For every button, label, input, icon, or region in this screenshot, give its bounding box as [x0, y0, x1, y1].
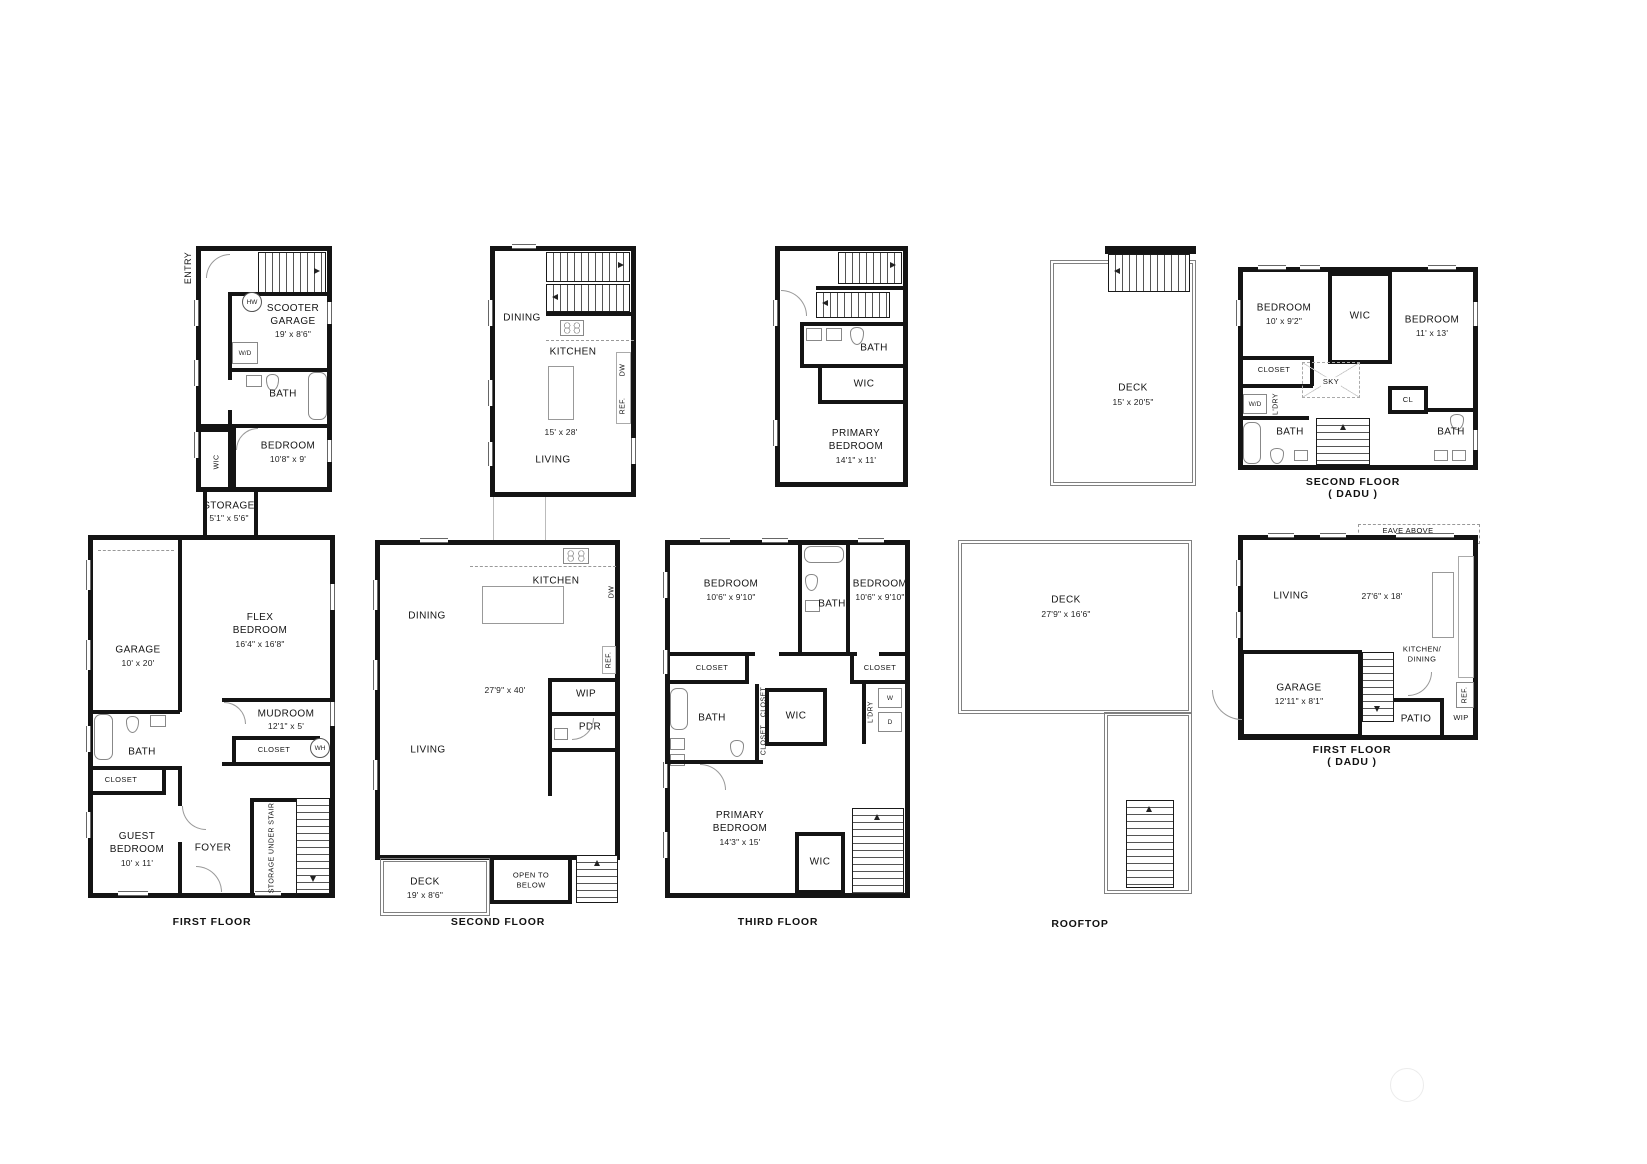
- window: [1473, 302, 1478, 326]
- window: [512, 244, 536, 249]
- room-label-kitchen-dining: KITCHEN/ DINING: [1391, 644, 1453, 664]
- caption-rooftop: ROOFTOP: [1051, 918, 1108, 930]
- dim-garage: 10' x 20': [122, 658, 155, 668]
- caption-third-floor: THIRD FLOOR: [738, 916, 819, 928]
- dim-second-lower: 27'9" x 40': [484, 685, 525, 695]
- wall: [548, 748, 620, 752]
- sink-symbol: [1294, 450, 1308, 461]
- stair-direction-arrow: [618, 262, 624, 268]
- dishwasher-label: DW: [609, 586, 616, 598]
- room-label-bath-right: BATH: [1437, 426, 1465, 439]
- window: [1236, 612, 1241, 638]
- window: [1236, 560, 1241, 586]
- rooftop-deck-railing: [1050, 260, 1196, 486]
- window: [194, 432, 199, 458]
- room-label-bedroom: BEDROOM: [261, 440, 315, 453]
- wall: [1243, 416, 1309, 420]
- window: [1258, 265, 1286, 270]
- room-label-dining: DINING: [503, 312, 540, 325]
- dim-primary-bedroom: 14'3" x 15': [719, 837, 760, 847]
- dim-bedroom: 10'8" x 9': [270, 454, 306, 464]
- sink-symbol: [670, 738, 685, 750]
- dim-deck: 27'9" x 16'6": [1041, 609, 1090, 619]
- dim-deck: 15' x 20'5": [1112, 397, 1153, 407]
- room-label-closet: CLOSET: [1258, 365, 1290, 375]
- room-label-guest-closet: CLOSET: [105, 775, 137, 785]
- sink-symbol: [1452, 450, 1466, 461]
- deck-label: DECK: [1118, 382, 1147, 395]
- wall: [88, 791, 166, 795]
- window: [631, 438, 636, 464]
- stair-direction-arrow: [314, 268, 320, 274]
- window: [663, 832, 668, 858]
- window: [858, 538, 884, 543]
- stair-direction-arrow: [1374, 706, 1380, 712]
- wall: [800, 322, 804, 368]
- bathtub-symbol: [94, 714, 113, 760]
- room-label-garage: GARAGE: [1276, 682, 1321, 695]
- window: [86, 812, 91, 838]
- garage-door-dashed: [98, 550, 174, 551]
- sink-symbol: [246, 375, 262, 387]
- window: [373, 660, 378, 690]
- room-label-bath-top: BATH: [818, 598, 846, 611]
- room-label-foyer: FOYER: [195, 842, 231, 855]
- room-label-wic-mid: WIC: [786, 710, 807, 723]
- bathtub-symbol: [670, 688, 688, 730]
- wall: [862, 684, 866, 744]
- window: [1300, 265, 1320, 270]
- wall: [546, 312, 636, 316]
- room-label-bath: BATH: [860, 342, 888, 355]
- stair-direction-arrow: [1340, 424, 1346, 430]
- room-label-wic: WIC: [854, 378, 875, 391]
- skylight-label: SKY: [1321, 377, 1341, 387]
- wall: [232, 736, 236, 764]
- wall: [548, 678, 620, 682]
- stove-symbol: [560, 320, 584, 336]
- wall: [232, 736, 320, 740]
- window: [488, 380, 493, 406]
- wall: [816, 286, 904, 290]
- dishwasher-label: DW: [620, 364, 627, 376]
- wall: [222, 698, 335, 702]
- wall: [846, 544, 850, 652]
- bathtub-symbol: [308, 372, 327, 420]
- window: [488, 300, 493, 326]
- stair-direction-arrow: [552, 294, 558, 300]
- room-label-primary-bedroom: PRIMARY BEDROOM: [695, 809, 785, 835]
- laundry-label: L'DRY: [868, 701, 875, 723]
- washer-symbol: W: [878, 688, 902, 708]
- window: [194, 300, 199, 326]
- room-label-wic: WIC: [1350, 310, 1371, 323]
- room-label-bedroom-left: BEDROOM: [1257, 302, 1311, 315]
- stairs: [852, 808, 904, 894]
- washer-dryer-symbol: W/D: [1243, 394, 1267, 414]
- room-label-wic-bottom: WIC: [810, 856, 831, 869]
- wall: [203, 492, 207, 535]
- wall: [232, 428, 236, 492]
- stairs: [546, 284, 630, 312]
- wall: [879, 652, 908, 656]
- kitchen-island: [482, 586, 564, 624]
- room-label-deck: DECK: [410, 876, 439, 889]
- window: [373, 580, 378, 610]
- dim-scooter-garage: 19' x 8'6": [275, 329, 311, 339]
- dim-deck: 19' x 8'6": [407, 890, 443, 900]
- stove-symbol: [563, 548, 589, 564]
- window: [86, 726, 91, 752]
- caption-second-floor: SECOND FLOOR: [451, 916, 545, 928]
- room-label-guest-bedroom: GUEST BEDROOM: [97, 830, 177, 856]
- deck-label: DECK: [1051, 594, 1080, 607]
- dim-living: 27'6" x 18': [1361, 591, 1402, 601]
- dim-bedroom-left: 10' x 9'2": [1266, 316, 1302, 326]
- window: [373, 760, 378, 790]
- room-label-bedroom-right: BEDROOM: [853, 578, 907, 591]
- dryer-symbol: D: [878, 712, 902, 732]
- dim-second-upper: 15' x 28': [545, 427, 578, 437]
- window: [330, 700, 335, 726]
- bathtub-symbol: [1243, 422, 1261, 464]
- wall: [88, 766, 180, 770]
- rooftop-deck-railing: [958, 540, 1192, 714]
- room-label-living: LIVING: [1273, 590, 1308, 603]
- sink-symbol: [1434, 450, 1448, 461]
- window: [762, 538, 788, 543]
- stair-direction-arrow: [822, 300, 828, 306]
- sink-symbol: [826, 328, 842, 341]
- kitchen-island: [1432, 572, 1454, 638]
- stairs: [838, 252, 902, 284]
- caption-first-floor: FIRST FLOOR: [173, 916, 252, 928]
- window: [86, 560, 91, 590]
- dim-bedroom-right: 11' x 13': [1416, 328, 1448, 338]
- wall: [250, 798, 254, 898]
- room-label-cl: CL: [1403, 395, 1413, 405]
- room-label-scooter-garage: SCOOTER GARAGE: [255, 302, 331, 328]
- label-open-to-below: OPEN TO BELOW: [506, 870, 556, 890]
- room-label-bath-left: BATH: [698, 712, 726, 725]
- caption-dadu-first-sub: ( DADU ): [1327, 756, 1377, 768]
- stairs: [1126, 800, 1174, 888]
- window: [1268, 533, 1294, 538]
- wall: [1428, 408, 1478, 412]
- wall: [1394, 698, 1444, 702]
- wall: [250, 798, 296, 802]
- stair-direction-arrow: [874, 814, 880, 820]
- refrigerator-label: REF.: [1462, 687, 1469, 704]
- garage-door-arc: [1212, 690, 1242, 720]
- counter-dashed-line: [546, 340, 634, 341]
- wall: [665, 760, 763, 764]
- window: [773, 420, 778, 446]
- wall: [200, 428, 232, 432]
- window: [1473, 430, 1478, 450]
- window: [86, 640, 91, 670]
- window: [327, 440, 332, 462]
- counter-dashed-line: [470, 566, 616, 567]
- water-heater-symbol: WH: [310, 738, 330, 758]
- room-label-primary-bedroom: PRIMARY BEDROOM: [816, 427, 896, 453]
- dim-storage: 5'1" x 5'6": [209, 513, 248, 523]
- wall: [800, 322, 908, 326]
- room-label-kitchen: KITCHEN: [550, 346, 597, 359]
- room-label-closet-right: CLOSET: [864, 663, 896, 673]
- room-label-storage-under-stair: STORAGE UNDER STAIR: [269, 803, 276, 894]
- watermark-circle: [1390, 1068, 1424, 1102]
- window: [663, 572, 668, 598]
- window: [118, 891, 148, 896]
- window: [330, 584, 335, 610]
- wall: [669, 652, 755, 656]
- room-label-wip: WIP: [576, 688, 596, 701]
- window: [488, 442, 493, 466]
- wall: [850, 652, 854, 682]
- refrigerator-label: REF.: [606, 652, 613, 669]
- window: [1320, 533, 1346, 538]
- wall: [818, 364, 822, 404]
- wall: [178, 766, 182, 806]
- dim-flex-bedroom: 16'4" x 16'8": [235, 639, 284, 649]
- stair-direction-arrow: [1114, 268, 1120, 274]
- window: [663, 650, 668, 674]
- room-label-patio: PATIO: [1401, 713, 1432, 726]
- dim-primary-bedroom: 14'1" x 11': [836, 455, 876, 465]
- entry-label: ENTRY: [183, 252, 193, 284]
- wall: [178, 540, 182, 712]
- room-label-bath: BATH: [128, 746, 156, 759]
- wall: [798, 544, 802, 652]
- dim-mudroom: 12'1" x 5': [268, 721, 304, 731]
- room-label-wip: WIP: [1453, 713, 1468, 723]
- wall: [800, 364, 908, 368]
- window: [1428, 265, 1456, 270]
- room-label-wic: WIC: [214, 455, 221, 470]
- wall: [222, 762, 335, 766]
- caption-dadu-second: SECOND FLOOR: [1306, 476, 1400, 488]
- room-label-flex-bedroom: FLEX BEDROOM: [220, 611, 300, 637]
- wall: [162, 766, 166, 795]
- bathtub-symbol: [804, 546, 844, 563]
- floor-plan-sheet: ENTRY HW SCOOTER GARAGE 19' x 8'6" W/D B…: [0, 0, 1647, 1164]
- window: [663, 762, 668, 788]
- wall: [818, 400, 908, 404]
- sink-symbol: [806, 328, 822, 341]
- stair-direction-arrow: [594, 860, 600, 866]
- wall: [178, 842, 182, 898]
- wall: [745, 652, 749, 682]
- room-label-bath-left: BATH: [1276, 426, 1304, 439]
- wall: [1105, 246, 1196, 254]
- dim-guest-bedroom: 10' x 11': [121, 858, 153, 868]
- room-label-bedroom-right: BEDROOM: [1405, 314, 1459, 327]
- room-label-dining: DINING: [408, 610, 445, 623]
- wall: [755, 684, 759, 762]
- room-label-mudroom-closet: CLOSET: [258, 745, 290, 755]
- dim-bedroom-left: 10'6" x 9'10": [706, 592, 755, 602]
- wall: [548, 678, 552, 796]
- window: [1236, 300, 1241, 326]
- room-label-closet-left: CLOSET: [696, 663, 728, 673]
- room-label-living: LIVING: [410, 744, 445, 757]
- wall: [669, 680, 749, 684]
- room-label-storage: STORAGE: [203, 500, 255, 513]
- laundry-label: L'DRY: [1273, 393, 1280, 415]
- room-label-bath: BATH: [269, 388, 297, 401]
- window: [773, 300, 778, 326]
- room-label-garage: GARAGE: [115, 644, 160, 657]
- stair-direction-arrow: [1146, 806, 1152, 812]
- caption-dadu-second-sub: ( DADU ): [1328, 488, 1378, 500]
- room-label-bedroom-left: BEDROOM: [704, 578, 758, 591]
- sink-symbol: [150, 715, 166, 727]
- dim-bedroom-right: 10'6" x 9'10": [855, 592, 904, 602]
- wall: [1243, 356, 1313, 360]
- stair-direction-arrow: [310, 876, 316, 882]
- section-connector-line: [493, 497, 494, 540]
- dim-garage: 12'11" x 8'1": [1275, 696, 1324, 706]
- sink-symbol: [554, 728, 568, 740]
- caption-dadu-first: FIRST FLOOR: [1313, 744, 1392, 756]
- window: [194, 360, 199, 386]
- washer-dryer-symbol: W/D: [232, 342, 258, 364]
- refrigerator-label: REF.: [620, 398, 627, 415]
- room-label-living: LIVING: [535, 454, 570, 467]
- wall: [254, 492, 258, 535]
- window: [700, 538, 730, 543]
- room-label-mudroom: MUDROOM: [258, 708, 315, 721]
- stair-direction-arrow: [890, 262, 896, 268]
- stairs: [1108, 254, 1190, 292]
- counter: [1458, 556, 1474, 678]
- wall: [548, 712, 620, 716]
- window: [420, 538, 448, 543]
- wall: [1440, 698, 1444, 740]
- section-connector-line: [545, 497, 546, 540]
- wall: [850, 680, 908, 684]
- kitchen-island: [548, 366, 574, 420]
- wall: [779, 652, 857, 656]
- window: [1396, 533, 1454, 538]
